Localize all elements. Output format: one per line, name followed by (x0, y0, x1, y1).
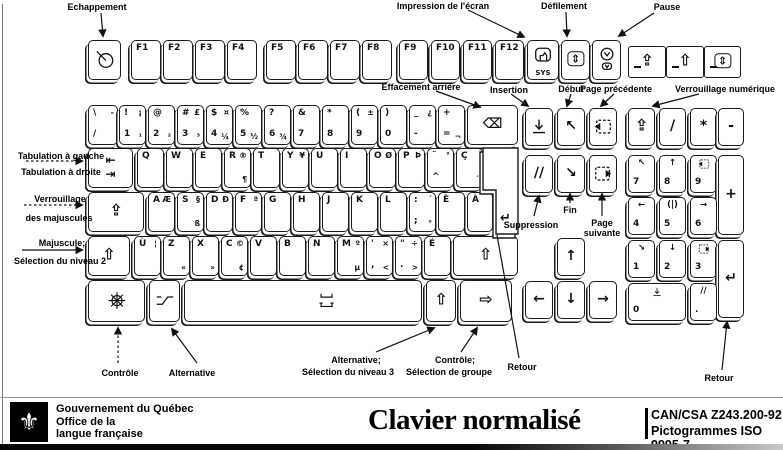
key-q: Q (137, 148, 164, 188)
key-slash-legend-bl: / (93, 130, 96, 139)
callout-tab-left: Tabulation à gauche (18, 151, 104, 161)
key-minus-legend-bl: - (414, 130, 418, 139)
key-equals: +=¬ (438, 105, 465, 145)
key-l-legend-tl: L (385, 196, 391, 205)
key-6-legend-br: ¾ (279, 133, 287, 141)
key-9-legend-tr: ± (367, 109, 374, 117)
key-semicolon: :´;° (409, 192, 436, 232)
pgup-icon (697, 158, 710, 170)
key-arrow-up: ↑ (557, 238, 585, 276)
key-o-legend-tl: O (374, 152, 382, 161)
key-1-legend-tr: ¡ (138, 109, 142, 117)
key-e-acute: É (424, 236, 451, 276)
key-c-legend-tl: C (226, 240, 233, 249)
key-numpad-multiply: * (690, 108, 717, 146)
key-4-legend-bl: 4 (211, 130, 217, 139)
footer-gov: Gouvernement du Québec (56, 403, 194, 415)
key-g: G (264, 192, 291, 232)
key-equals-legend-br: ¬ (455, 133, 461, 141)
key-r-legend-tr: ® (239, 152, 247, 160)
key-8-legend-tl: * (327, 109, 332, 118)
key-0-legend-bl: 0 (385, 130, 391, 139)
key-k-legend-tl: K (356, 196, 363, 205)
key-numpad-subtract: - (718, 108, 744, 146)
key-6: ?6¾ (264, 105, 291, 145)
key-e-grave-legend-tl: È (443, 196, 449, 205)
key-arrow-down: ↓ (557, 281, 585, 319)
key-f1-legend-tl: F1 (136, 44, 148, 53)
pgdn-icon (593, 164, 613, 184)
key-scroll-lock: ⇕ (561, 40, 590, 80)
key-j-legend-tl: J (327, 196, 330, 205)
key-semicolon-legend-br: ° (428, 220, 432, 228)
key-5-legend-bl: 5 (240, 130, 246, 139)
key-numpad-6-legend-tc: → (700, 201, 707, 210)
key-i: I (340, 148, 367, 188)
key-circumflex-legend-bl: ^ (432, 173, 440, 182)
insert-icon (529, 117, 549, 137)
key-end: ↘ (557, 155, 585, 193)
key-pause (592, 40, 621, 80)
key-6-legend-tl: ? (269, 109, 274, 118)
key-3: #£3³ (177, 105, 204, 145)
callout-group-line2: Sélection de groupe (406, 367, 492, 377)
footer-office-line1: Office de la (56, 416, 115, 428)
key-q-legend-tl: Q (142, 152, 150, 161)
key-7: &7 (293, 105, 320, 145)
callout-scroll-lock: Défilement (541, 1, 587, 11)
key-comma-legend-tr: × (382, 240, 389, 248)
key-numpad-decimal-legend-tc: ∕∕ (700, 287, 706, 296)
key-numpad-enter-legend-c: ↵ (725, 271, 737, 285)
key-p: PÞ (398, 148, 425, 188)
key-5-legend-br: ½ (250, 133, 258, 141)
key-2-legend-br: ² (168, 133, 171, 141)
key-m-legend-tl: M (342, 240, 351, 249)
key-o-legend-tr: Ø (385, 152, 392, 160)
key-3-legend-tr: £ (194, 109, 200, 117)
key-numpad-2: 2↓ (659, 240, 686, 278)
indicator-caps-lock-legend-c: ⇧ (678, 53, 691, 69)
key-f-legend-tr: ª (253, 196, 258, 204)
key-minus-legend-tr: ¿ (427, 109, 432, 117)
key-f12-legend-tl: F12 (500, 44, 519, 53)
key-x-legend-tl: X (197, 240, 204, 249)
key-9-legend-tl: ( (356, 109, 360, 118)
key-w: W (166, 148, 193, 188)
key-escape (88, 40, 121, 80)
key-a: AÆ (148, 192, 175, 232)
callout-page-up: Page précédente (580, 84, 652, 94)
key-numpad-2-legend-tc: ↓ (669, 244, 676, 253)
key-arrow-up-legend-c: ↑ (565, 249, 577, 263)
key-numpad-add-legend-c: + (725, 187, 737, 201)
key-numpad-9: 9 (690, 155, 717, 193)
key-alt-gr: ⇧ (426, 280, 456, 322)
key-tab-legend-bc: ⇥ (105, 168, 115, 180)
key-s-legend-br: ß (195, 220, 200, 228)
key-numpad-4: 4← (628, 197, 655, 235)
key-e-acute-legend-tl: É (429, 240, 435, 249)
key-comma-legend-br: < (383, 264, 389, 272)
key-3-legend-br: ³ (197, 133, 200, 141)
key-p-legend-tr: Þ (415, 152, 421, 160)
key-7-legend-tl: & (298, 109, 306, 118)
space-icon (316, 289, 338, 313)
key-c: C©¢ (221, 236, 248, 276)
key-numpad-5-legend-bl: 5 (664, 220, 670, 229)
key-slash: \-/ (88, 105, 118, 145)
key-numpad-4-legend-bl: 4 (633, 220, 639, 229)
led-mark (672, 66, 679, 69)
key-1-legend-br: ¹ (139, 133, 142, 141)
key-f11-legend-tl: F11 (468, 44, 487, 53)
callout-return-numpad: Retour (705, 373, 734, 383)
key-period-legend-bl: . (400, 261, 403, 270)
key-home-legend-c: ↖ (565, 119, 577, 133)
callout-control: Contrôle (102, 368, 139, 378)
key-2-legend-bl: 2 (153, 130, 159, 139)
key-f11: F11 (463, 40, 492, 80)
key-right-shift: ⇧ (453, 236, 518, 276)
key-f8: F8 (362, 40, 392, 80)
key-slash-legend-tr: - (111, 109, 114, 117)
callout-altgr-line2: Sélection du niveau 3 (302, 367, 394, 377)
key-f7: F7 (330, 40, 360, 80)
key-b-legend-tl: B (284, 240, 291, 249)
key-numpad-multiply-legend-c: * (700, 119, 707, 133)
key-f9-legend-tl: F9 (404, 44, 416, 53)
key-f6: F6 (298, 40, 328, 80)
key-period-legend-tr: ÷ (411, 240, 418, 248)
key-c-legend-br: ¢ (239, 264, 244, 272)
key-f3-legend-tl: F3 (200, 44, 212, 53)
callout-tab-right: Tabulation à droite (21, 167, 101, 177)
key-semicolon-legend-bl: ; (414, 217, 418, 226)
callout-return-main: Retour (508, 362, 537, 372)
key-z-legend-tl: Z (168, 240, 175, 249)
key-backspace-legend-c: ⌫ (483, 117, 503, 131)
key-f: Fª (235, 192, 262, 232)
key-numpad-decimal-legend-bl: . (695, 306, 698, 315)
key-u-grave-legend-tl: Ù (139, 240, 146, 249)
key-m-legend-tr: º (355, 240, 360, 248)
key-f4-legend-tl: F4 (232, 44, 244, 53)
key-e-legend-tl: E (200, 152, 206, 161)
key-numpad-7-legend-tc: ↖ (638, 159, 645, 168)
key-circumflex-legend-tr: ° (446, 152, 450, 160)
key-home: ↖ (557, 108, 585, 146)
key-numpad-1: 1↘ (628, 240, 655, 278)
key-circumflex: ¨°^ (427, 148, 454, 188)
pgdn-icon (697, 243, 710, 255)
callout-shift-line2: Sélection du niveau 2 (14, 256, 106, 266)
key-3-legend-tl: # (182, 109, 190, 118)
key-l: L (380, 192, 407, 232)
indicator-num-lock-legend-c: ⇪ (640, 53, 653, 69)
key-5-legend-tl: % (240, 109, 249, 118)
key-c-legend-tr: © (236, 240, 244, 248)
key-s: S§ß (177, 192, 204, 232)
key-numpad-3-legend-bl: 3 (695, 263, 701, 272)
key-4: $¤4¼ (206, 105, 233, 145)
key-numpad-4-legend-tc: ← (638, 201, 645, 210)
key-page-down (589, 155, 617, 193)
callout-shift-line1: Majuscule; (39, 238, 86, 248)
callout-backspace: Effacement arrière (381, 82, 460, 92)
scan-edge (0, 444, 783, 450)
key-period-legend-br: > (412, 264, 418, 272)
key-numpad-8-legend-tc: ↑ (669, 159, 676, 168)
key-x-legend-br: » (210, 264, 215, 272)
key-h: H (293, 192, 320, 232)
key-f12: F12 (495, 40, 524, 80)
key-comma-legend-tl: ' (371, 240, 374, 249)
key-d-legend-tl: D (211, 196, 218, 205)
key-num-lock: ⇪ (628, 108, 655, 146)
callout-altgr-line1: Alternative; (331, 355, 381, 365)
key-v-legend-tl: V (255, 240, 262, 249)
callout-alt: Alternative (169, 368, 216, 378)
key-f1: F1 (131, 40, 161, 80)
key-equals-legend-bl: = (443, 130, 451, 139)
key-r-legend-br: ¶ (242, 176, 247, 184)
key-numpad-5: 5(|) (659, 197, 686, 235)
indicator-scroll-lock: ⇕ (704, 46, 741, 78)
key-scroll-lock-legend-c: ⇕ (567, 51, 584, 66)
key-f10-legend-tl: F10 (436, 44, 455, 53)
key-4-legend-br: ¼ (221, 133, 229, 141)
key-0-legend-tl: ) (385, 109, 389, 118)
key-e: E (195, 148, 222, 188)
key-u-legend-tl: U (316, 152, 323, 161)
key-z: Z« (163, 236, 190, 276)
pgup-icon (593, 117, 613, 137)
key-4-legend-tl: $ (211, 109, 217, 118)
key-d: DÐ (206, 192, 233, 232)
key-y-legend-tl: Y (287, 152, 294, 161)
key-print-screen: SYS (527, 40, 559, 80)
key-0: )0 (380, 105, 407, 145)
fleur-de-lis-icon: ⚜ (18, 410, 40, 434)
key-tab-legend-tc: ⇤ (105, 154, 115, 166)
key-e-grave: È (438, 192, 465, 232)
key-numpad-enter: ↵ (718, 240, 744, 318)
key-delete-legend-c: ∕∕ (534, 166, 544, 180)
key-9: (±9 (351, 105, 378, 145)
key-numpad-0: 0 (628, 283, 686, 321)
key-delete: ∕∕ (525, 155, 553, 193)
footer-office-line2: langue française (56, 428, 143, 440)
esc-icon (95, 50, 115, 70)
key-alt-gr-legend-c: ⇧ (434, 292, 447, 308)
standard-line1: CAN/CSA Z243.200-92 (651, 408, 782, 422)
key-numpad-3: 3 (690, 240, 717, 278)
key-arrow-down-legend-c: ↓ (565, 292, 577, 306)
key-f6-legend-tl: F6 (303, 44, 315, 53)
key-caps-lock: ⇪ (88, 192, 144, 232)
key-numpad-7: 7↖ (628, 155, 655, 193)
key-y: Y¥ (282, 148, 309, 188)
key-period-legend-tl: " (400, 240, 405, 249)
key-f2-legend-tl: F2 (168, 44, 180, 53)
key-1: !¡1¹ (119, 105, 146, 145)
key-4-legend-tr: ¤ (224, 109, 229, 117)
key-n-legend-tl: N (313, 240, 321, 249)
key-numpad-add: + (718, 155, 744, 235)
key-7-legend-bl: 7 (298, 130, 304, 139)
key-1-legend-bl: 1 (124, 130, 130, 139)
key-h-legend-tl: H (298, 196, 306, 205)
callout-print-screen: Impression de l'écran (397, 1, 489, 11)
key-arrow-left-legend-c: ← (533, 292, 545, 306)
key-alt (149, 280, 180, 322)
key-comma-legend-bl: , (371, 261, 374, 270)
key-circumflex-legend-tl: ¨ (432, 152, 437, 161)
clavier-normalise-diagram: F1F2F3F4F5F6F7F8F9F10F11F12SYS⇕⇪⇧⇕\-/!¡1… (0, 0, 783, 450)
callout-end: Fin (563, 205, 577, 215)
key-f3: F3 (195, 40, 225, 80)
key-comma: '×,< (366, 236, 393, 276)
key-c-cedilla-legend-tl: Ç (461, 152, 468, 161)
key-numpad-divide-legend-c: / (670, 119, 675, 133)
key-arrow-right: → (589, 281, 617, 319)
key-numpad-7-legend-bl: 7 (633, 178, 639, 187)
key-u-grave: Ù¦ (134, 236, 161, 276)
key-slash-legend-tl: \ (93, 109, 96, 118)
key-control (88, 280, 145, 322)
key-2: @2² (148, 105, 175, 145)
print-icon (533, 45, 553, 65)
key-u-grave-legend-tr: ¦ (154, 240, 157, 248)
key-m: Mºµ (337, 236, 364, 276)
key-d-legend-tr: Ð (222, 196, 229, 204)
key-6-legend-bl: 6 (269, 130, 275, 139)
callout-page-down-line1: Page (591, 218, 613, 228)
key-arrow-right-legend-c: → (597, 292, 609, 306)
key-f5: F5 (266, 40, 296, 80)
key-2-legend-tl: @ (153, 109, 162, 118)
key-num-lock-legend-c: ⇪ (635, 118, 648, 134)
key-f9: F9 (399, 40, 428, 80)
key-semicolon-legend-tr: ´ (428, 196, 432, 204)
key-numpad-8-legend-bl: 8 (664, 178, 670, 187)
key-group-select: ⇨ (460, 280, 512, 322)
alt-icon (155, 291, 175, 311)
key-insert (525, 108, 553, 146)
key-f7-legend-tl: F7 (335, 44, 347, 53)
key-right-shift-legend-c: ⇧ (479, 247, 492, 263)
key-numpad-8: 8↑ (659, 155, 686, 193)
key-1-legend-tl: ! (124, 109, 128, 118)
callout-caps-line1: Verrouillage (34, 194, 86, 204)
key-p-legend-tl: P (403, 152, 410, 161)
callout-pause: Pause (654, 2, 681, 12)
key-t-legend-tl: T (258, 152, 264, 161)
key-u: U (311, 148, 338, 188)
callout-caps-line2: des majuscules (25, 213, 92, 223)
key-equals-legend-tl: + (443, 109, 451, 118)
callout-group-line1: Contrôle; (435, 355, 475, 365)
key-f-legend-tl: F (240, 196, 246, 205)
led-mark (710, 66, 717, 69)
key-8: *8 (322, 105, 349, 145)
key-t: T (253, 148, 280, 188)
led-mark (634, 66, 641, 69)
callout-escape: Echappement (67, 2, 126, 12)
key-8-legend-bl: 8 (327, 130, 333, 139)
pause-icon (598, 46, 616, 72)
key-numpad-2-legend-bl: 2 (664, 263, 670, 272)
key-end-legend-c: ↘ (565, 166, 577, 180)
key-n: N (308, 236, 335, 276)
key-f5-legend-tl: F5 (271, 44, 283, 53)
key-5: %5½ (235, 105, 262, 145)
indicator-caps-lock: ⇧ (666, 46, 704, 78)
key-numpad-9-legend-bl: 9 (695, 178, 701, 187)
key-a-legend-tr: Æ (162, 196, 171, 204)
key-numpad-6: 6→ (690, 197, 717, 235)
key-o: OØ (369, 148, 396, 188)
key-numpad-5-legend-tc: (|) (667, 201, 678, 210)
callout-delete: Suppression (504, 220, 559, 230)
callout-insert: Insertion (490, 85, 528, 95)
key-w-legend-tl: W (171, 152, 181, 161)
key-i-legend-tl: I (345, 152, 348, 161)
key-numpad-1-legend-bl: 1 (633, 263, 639, 272)
insert-icon (651, 286, 664, 298)
key-x: X» (192, 236, 219, 276)
footer-divider (0, 397, 783, 398)
key-print-screen-legend-bc: SYS (535, 70, 550, 77)
key-r-legend-tl: R (229, 152, 236, 161)
key-f4: F4 (227, 40, 257, 80)
key-j: J (322, 192, 349, 232)
key-f8-legend-tl: F8 (367, 44, 379, 53)
key-numpad-divide: / (659, 108, 686, 146)
key-g-legend-tl: G (269, 196, 276, 205)
key-f2: F2 (163, 40, 193, 80)
key-r: R®¶ (224, 148, 251, 188)
key-y-legend-tr: ¥ (299, 152, 305, 160)
key-m-legend-br: µ (354, 264, 360, 272)
key-semicolon-legend-tl: : (414, 196, 418, 205)
key-numpad-1-legend-tc: ↘ (638, 244, 645, 253)
key-s-legend-tl: S (182, 196, 188, 205)
key-numpad-0-legend-bl: 0 (633, 306, 639, 315)
key-page-up (589, 108, 617, 146)
page-edge-line (2, 4, 3, 445)
callout-num-lock: Verrouillage numérique (675, 84, 775, 94)
key-numpad-subtract-legend-c: - (728, 119, 734, 133)
key-backspace: ⌫ (467, 105, 518, 145)
document-title: Clavier normalisé (368, 404, 580, 437)
key-minus: _¿- (409, 105, 436, 145)
key-arrow-left: ← (525, 281, 553, 319)
key-numpad-decimal: .∕∕ (690, 283, 717, 321)
title-separator (645, 408, 648, 439)
key-space (184, 280, 422, 322)
key-v: V (250, 236, 277, 276)
key-z-legend-br: « (181, 264, 186, 272)
indicator-num-lock: ⇪ (628, 46, 666, 78)
key-k: K (351, 192, 378, 232)
key-group-select-legend-c: ⇨ (479, 292, 492, 308)
key-9-legend-bl: 9 (356, 130, 362, 139)
key-a-legend-tl: A (153, 196, 160, 205)
key-caps-lock-legend-c: ⇪ (109, 203, 122, 219)
key-b: B (279, 236, 306, 276)
